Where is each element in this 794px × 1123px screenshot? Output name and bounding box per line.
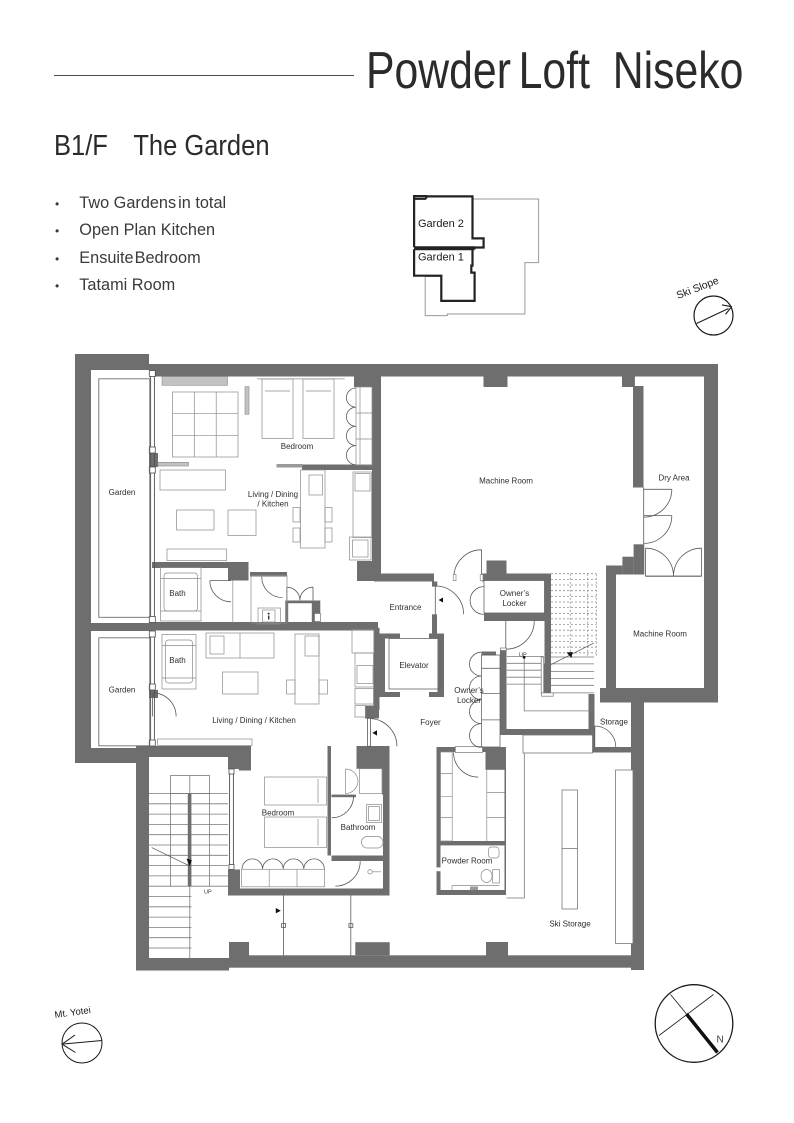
svg-text:Garden: Garden — [109, 686, 136, 695]
svg-text:Ski Slope: Ski Slope — [675, 275, 721, 302]
svg-text:Powder Room: Powder Room — [442, 857, 493, 866]
svg-text:Bedroom: Bedroom — [281, 442, 314, 451]
svg-text:Living / Dining / Kitchen: Living / Dining / Kitchen — [212, 716, 296, 725]
svg-text:Owner’s: Owner’s — [454, 686, 484, 695]
svg-text:Garden 1: Garden 1 — [418, 252, 464, 264]
svg-text:Bath: Bath — [169, 589, 185, 598]
svg-text:Bath: Bath — [169, 656, 185, 665]
svg-text:Elevator: Elevator — [399, 661, 429, 670]
svg-text:Dry Area: Dry Area — [658, 474, 690, 483]
svg-text:Mt. Yotei: Mt. Yotei — [54, 1005, 92, 1021]
svg-text:Garden: Garden — [109, 488, 136, 497]
svg-text:Locker: Locker — [502, 599, 526, 608]
svg-text:Foyer: Foyer — [420, 718, 441, 727]
svg-text:N: N — [717, 1035, 724, 1046]
svg-text:Bedroom: Bedroom — [262, 809, 295, 818]
svg-text:Garden 2: Garden 2 — [418, 218, 464, 230]
svg-text:Ski Storage: Ski Storage — [549, 920, 591, 929]
svg-text:Bathroom: Bathroom — [341, 823, 376, 832]
svg-text:UP: UP — [204, 890, 212, 896]
svg-text:Locker: Locker — [457, 696, 481, 705]
svg-text:Storage: Storage — [600, 718, 629, 727]
svg-text:Machine Room: Machine Room — [479, 477, 533, 486]
svg-text:Owner’s: Owner’s — [500, 589, 530, 598]
svg-text:Machine Room: Machine Room — [633, 630, 687, 639]
svg-text:Living / Dining: Living / Dining — [248, 490, 298, 499]
svg-text:/ Kitchen: / Kitchen — [257, 500, 288, 509]
svg-text:Entrance: Entrance — [389, 603, 422, 612]
